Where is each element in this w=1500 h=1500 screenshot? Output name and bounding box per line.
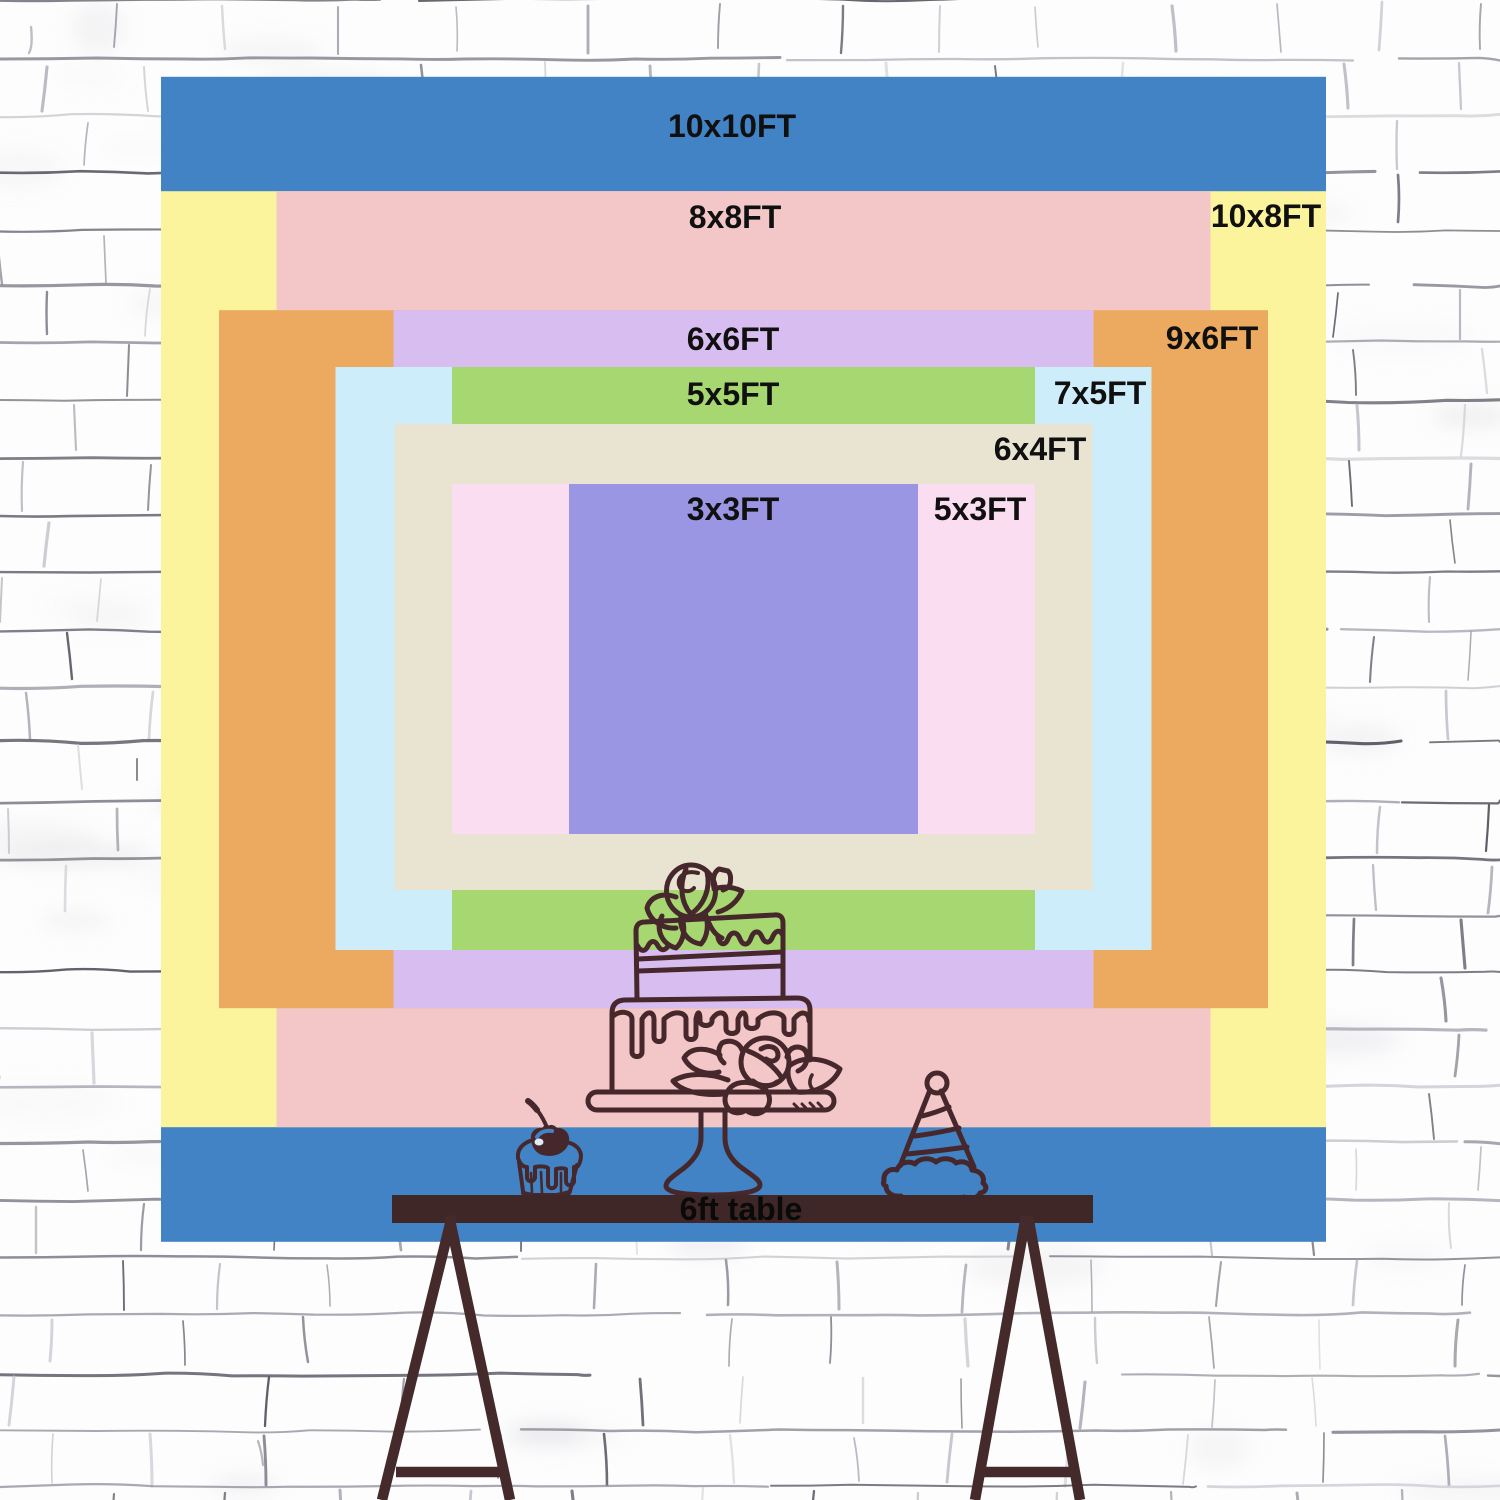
svg-text:6x4FT: 6x4FT	[994, 431, 1087, 467]
svg-text:6x6FT: 6x6FT	[687, 321, 780, 357]
svg-text:10x10FT: 10x10FT	[668, 108, 797, 144]
svg-text:3x3FT: 3x3FT	[687, 491, 780, 527]
svg-text:9x6FT: 9x6FT	[1166, 320, 1259, 356]
svg-text:8x8FT: 8x8FT	[689, 199, 782, 235]
svg-text:5x3FT: 5x3FT	[934, 491, 1027, 527]
svg-text:10x8FT: 10x8FT	[1211, 198, 1322, 234]
svg-text:6ft table: 6ft table	[680, 1191, 803, 1227]
svg-text:5x5FT: 5x5FT	[687, 376, 780, 412]
svg-text:7x5FT: 7x5FT	[1054, 375, 1147, 411]
